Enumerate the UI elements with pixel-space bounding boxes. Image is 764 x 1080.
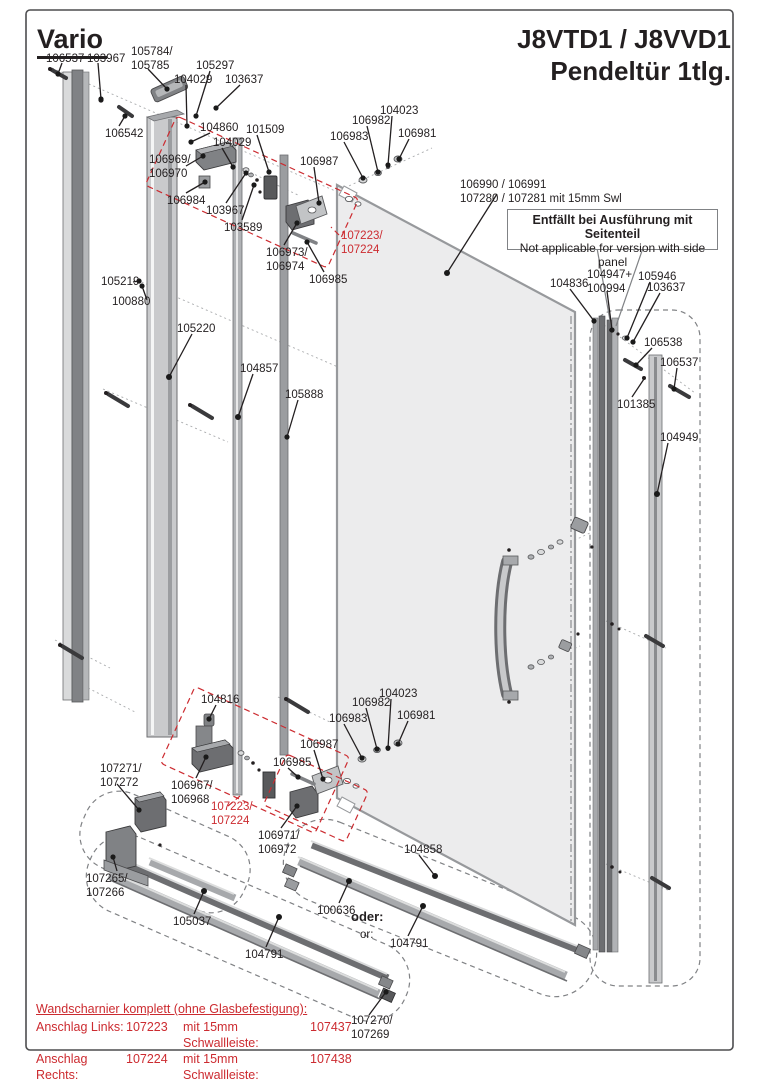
wall-profile-left <box>63 70 89 702</box>
anschlag-rechts-swl-part: 107438 <box>310 1051 352 1080</box>
part-label-100636: 100636 <box>317 904 355 918</box>
part-label-106983-2: 106983 <box>329 712 367 726</box>
anschlag-rechts-part: 107224 <box>126 1051 183 1080</box>
part-label-107223-2: 107223/ 107224 <box>211 800 253 828</box>
part-label-106973: 106973/ 106974 <box>266 246 308 274</box>
part-label-106987-2: 106987 <box>300 738 338 752</box>
part-label-105888: 105888 <box>285 388 323 402</box>
wall-hinge-row-right: Anschlag Rechts: 107224 mit 15mm Schwall… <box>36 1051 352 1080</box>
part-label-104858: 104858 <box>404 843 442 857</box>
part-label-105220: 105220 <box>177 322 215 336</box>
part-label-101385: 101385 <box>617 398 655 412</box>
part-label-106537-1: 106537 <box>46 52 84 66</box>
part-label-103967-2: 103967 <box>206 204 244 218</box>
glass-door-panel <box>337 185 575 925</box>
part-label-104023-2: 104023 <box>379 687 417 701</box>
model-title: J8VTD1 / J8VVD1 <box>517 24 731 55</box>
parts-diagram-page: Vario J8VTD1 / J8VVD1 Pendeltür 1tlg. En… <box>0 0 764 1080</box>
side-panel-note-box: Entfällt bei Ausführung mit Seitenteil N… <box>507 209 718 250</box>
part-label-105297: 105297 <box>196 59 234 73</box>
anschlag-links-swl-part: 107437 <box>310 1019 352 1051</box>
part-label-106990: 106990 / 106991 107280 / 107281 mit 15mm… <box>460 178 622 206</box>
part-label-105784: 105784/ 105785 <box>131 45 173 73</box>
part-label-106985-1: 106985 <box>309 273 347 287</box>
part-label-104836: 104836 <box>550 277 588 291</box>
part-label-106542: 106542 <box>105 127 143 141</box>
anschlag-links-swl-label: mit 15mm Schwallleiste: <box>183 1019 310 1051</box>
part-label-101509: 101509 <box>246 123 284 137</box>
part-label-106981-1: 106981 <box>398 127 436 141</box>
anschlag-rechts-label: Anschlag Rechts: <box>36 1051 126 1080</box>
part-label-107271: 107271/ 107272 <box>100 762 142 790</box>
oder-label: oder: <box>351 909 384 925</box>
anschlag-links-part: 107223 <box>126 1019 183 1051</box>
part-label-106969: 106969/ 106970 <box>149 153 191 181</box>
wall-hinge-row-left: Anschlag Links: 107223 mit 15mm Schwalll… <box>36 1019 352 1051</box>
part-label-106987-1: 106987 <box>300 155 338 169</box>
part-label-103967-1: 103967 <box>87 52 125 66</box>
part-label-106984: 106984 <box>167 194 205 208</box>
part-label-103637-2: 103637 <box>647 281 685 295</box>
right-profiles <box>593 316 662 983</box>
part-label-105037: 105037 <box>173 915 211 929</box>
part-label-107270: 107270/ 107269 <box>351 1014 393 1042</box>
part-label-104816: 104816 <box>201 693 239 707</box>
part-label-105219: 105219 <box>101 275 139 289</box>
wall-hinge-table-header: Wandscharnier komplett (ohne Glasbefesti… <box>36 1001 352 1017</box>
part-label-104857: 104857 <box>240 362 278 376</box>
part-label-104791-2: 104791 <box>245 948 283 962</box>
part-label-106983-1: 106983 <box>330 130 368 144</box>
part-label-103637-1: 103637 <box>225 73 263 87</box>
part-label-104029-1: 104029 <box>174 73 212 87</box>
part-label-104860: 104860 <box>200 121 238 135</box>
anschlag-links-label: Anschlag Links: <box>36 1019 126 1051</box>
part-label-104791-1: 104791 <box>390 937 428 951</box>
part-label-106538: 106538 <box>644 336 682 350</box>
part-label-106981-2: 106981 <box>397 709 435 723</box>
part-label-107265: 107265/ 107266 <box>86 872 128 900</box>
part-label-104947: 104947+ 100994 <box>587 268 632 296</box>
part-label-106985-2: 106985 <box>273 756 311 770</box>
wall-hinge-table: Wandscharnier komplett (ohne Glasbefesti… <box>36 1001 352 1080</box>
note-de: Entfällt bei Ausführung mit Seitenteil <box>508 213 717 241</box>
part-label-106537-2: 106537 <box>660 356 698 370</box>
part-label-106971: 106971/ 106972 <box>258 829 300 857</box>
part-label-104949: 104949 <box>660 431 698 445</box>
part-label-103589: 103589 <box>224 221 262 235</box>
or-label: or: <box>360 928 373 942</box>
product-title: Pendeltür 1tlg. <box>550 56 731 87</box>
anschlag-rechts-swl-label: mit 15mm Schwallleiste: <box>183 1051 310 1080</box>
note-en: Not applicable for version with side pan… <box>508 241 717 269</box>
part-label-106967: 106967/ 106968 <box>171 779 213 807</box>
part-label-107223-1: 107223/ 107224 <box>341 229 383 257</box>
part-label-104023-1: 104023 <box>380 104 418 118</box>
part-label-104029-2: 104029 <box>213 136 251 150</box>
part-label-100880: 100880 <box>112 295 150 309</box>
